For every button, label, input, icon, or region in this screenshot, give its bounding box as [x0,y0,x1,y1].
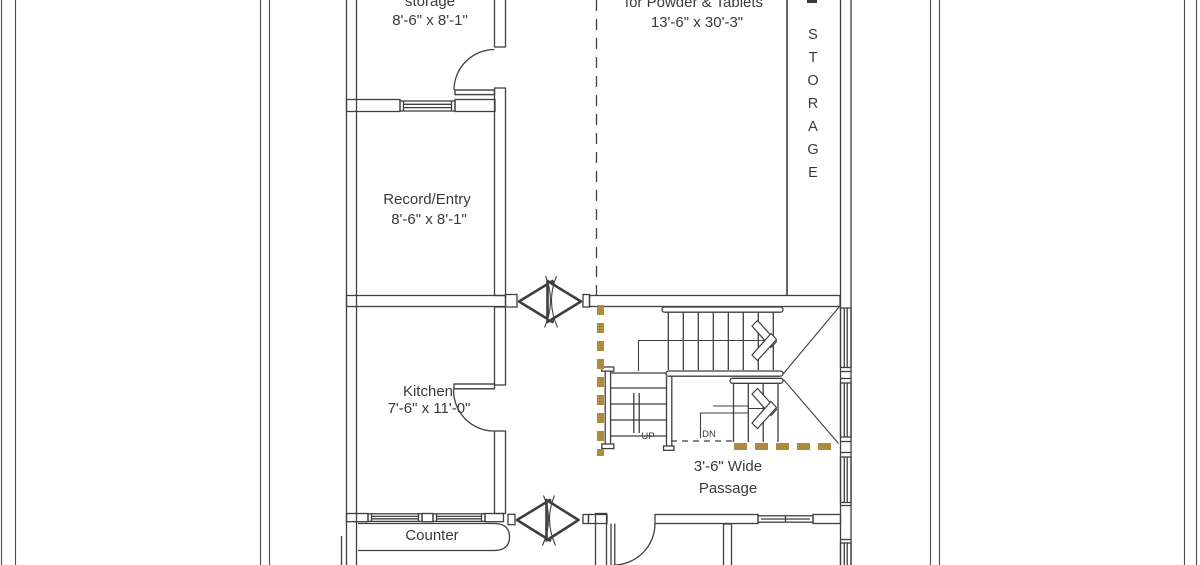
right-wall-windows [841,0,852,565]
storage-room-dims: 8'-6" x 8'-1" [350,13,510,28]
window-symbol [841,543,852,565]
staircase-symbol [602,307,840,451]
main-hall-label: for Powder & Tablets [614,0,774,10]
cropped-text-fragment [807,0,817,3]
double-swing-door-symbol [519,276,590,328]
window-symbol [841,383,852,437]
storage-room-label: storage [350,0,510,9]
kitchen-dims: 7'-6" x 11'-0" [349,401,509,416]
stair-top-wall [590,296,841,307]
window-symbol [368,514,422,522]
window-symbol [433,514,485,522]
window-symbol [841,457,852,503]
floor-plan-page: storage 8'-6" x 8'-1" for Powder & Table… [0,0,1200,565]
boundary-lines [2,0,1197,565]
main-hall-dims: 13'-6" x 30'-3" [617,15,777,30]
up-direction-arrow [639,321,777,372]
side-storage-label: STORAGE [805,27,821,188]
window-symbol [758,516,813,522]
left-wall [342,0,357,565]
stairs-up-label: UP [639,432,657,442]
floor-plan-linework [0,0,1200,565]
record-entry-label: Record/Entry [347,192,507,207]
kitchen-label: Kitchen [348,384,508,399]
bottom-walls [589,514,841,565]
passage-label-line1: 3'-6" Wide [648,459,808,474]
double-swing-door-symbol [508,496,589,546]
passage-label-line2: Passage [648,481,808,496]
record-entry-dims: 8'-6" x 8'-1" [349,212,509,227]
window-symbol [400,101,455,111]
door-swing-symbol [454,50,495,95]
window-symbol [841,308,852,368]
counter-label: Counter [352,528,512,543]
accent-dashed-lines [601,305,840,456]
door-swing-symbol [611,524,655,565]
stairs-down-label: DN [700,430,718,440]
